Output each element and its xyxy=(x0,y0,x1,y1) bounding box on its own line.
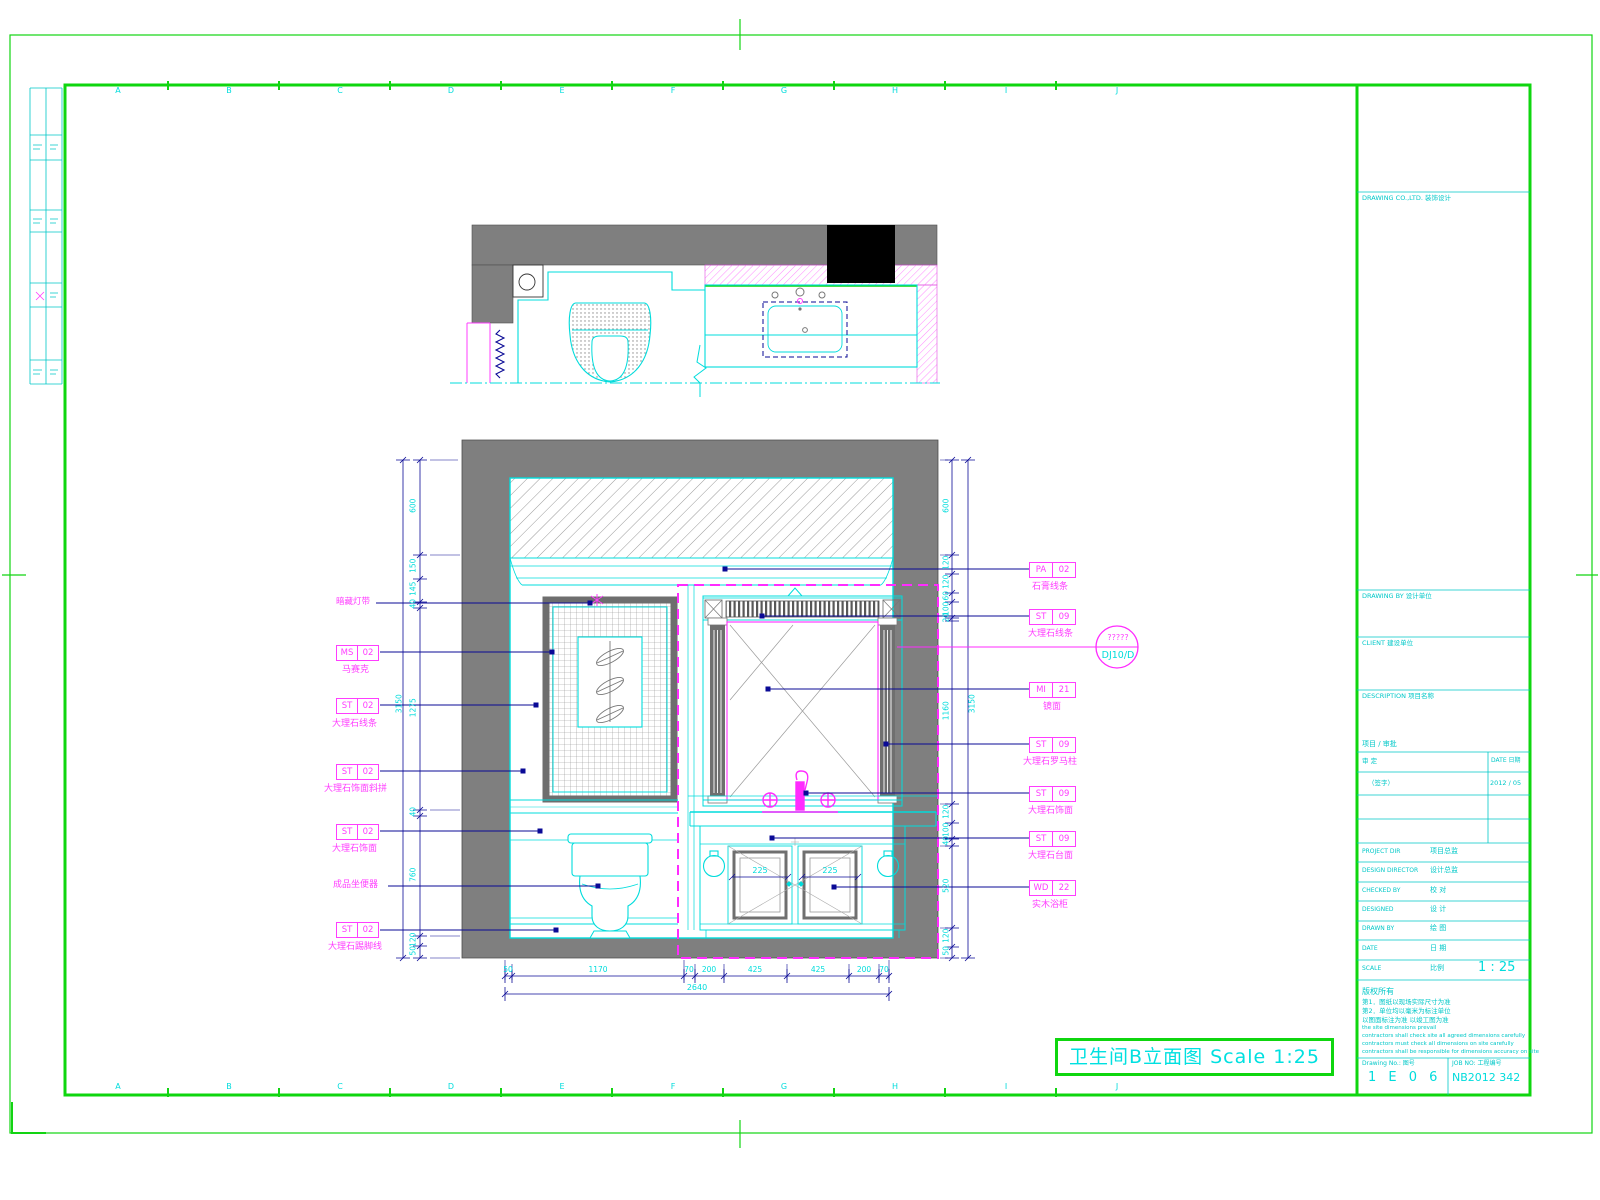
material-tag-pilaster: ST09 xyxy=(1029,737,1076,753)
info-en: SCALE xyxy=(1362,966,1381,972)
dim-text: 70 xyxy=(869,966,899,974)
material-label-skirting: 大理石踢脚线 xyxy=(328,943,382,952)
note-line: 版权所有 xyxy=(1362,988,1394,996)
material-tag-stone-face: ST02 xyxy=(336,824,379,840)
material-label-plaster: 石膏线条 xyxy=(1032,583,1068,592)
dim-text: 1275 xyxy=(409,688,417,728)
material-label-stone-diag: 大理石饰面斜拼 xyxy=(324,785,387,794)
material-label-pilaster: 大理石罗马柱 xyxy=(1023,758,1077,767)
scale-value: 1 : 25 xyxy=(1478,961,1515,974)
material-label-toilet: 成品坐便器 xyxy=(333,881,378,890)
note-line: 第1．图纸以现场实际尺寸为准 xyxy=(1362,999,1451,1006)
dim-text: 40 xyxy=(942,821,950,861)
material-label-stone-face: 大理石饰面 xyxy=(332,845,377,854)
info-cn: 设 计 xyxy=(1430,906,1446,913)
material-tag-stone-face-r: ST09 xyxy=(1029,786,1076,802)
titleblock-sec2: CLIENT 建设单位 xyxy=(1362,640,1413,647)
dim-text: 50 xyxy=(942,931,950,971)
material-label-cabinet: 实木浴柜 xyxy=(1032,901,1068,910)
grid-letter: I xyxy=(1000,86,1012,95)
material-label-mirror: 镜面 xyxy=(1043,703,1061,712)
info-cn: 日 期 xyxy=(1430,945,1446,952)
titleblock-company: DRAWING CO.,LTD. 装饰设计 xyxy=(1362,195,1451,202)
dim-total-right: 3150 xyxy=(968,684,976,724)
material-tag-countertop: ST09 xyxy=(1029,831,1076,847)
material-tag-skirting: ST02 xyxy=(336,922,379,938)
dim-text: 1160 xyxy=(942,691,950,731)
grid-letter: C xyxy=(334,86,346,95)
dim-text: 40 xyxy=(409,792,417,832)
drawing-title: 卫生间B立面图 Scale 1:25 xyxy=(1058,1041,1331,1073)
dim-text: 1170 xyxy=(583,966,613,974)
drawing-no: 1 E 0 6 xyxy=(1368,1071,1441,1084)
grid-letter: C xyxy=(334,1082,346,1091)
dim-total-bottom: 2640 xyxy=(672,984,722,992)
info-en: DESIGNED xyxy=(1362,907,1394,913)
grid-letter: E xyxy=(556,1082,568,1091)
grid-letter: B xyxy=(223,1082,235,1091)
dim-total-left: 3150 xyxy=(395,684,403,724)
material-label-mosaic: 马赛克 xyxy=(342,666,369,675)
titleblock-sec4: 项目 / 审批 xyxy=(1362,741,1397,748)
grid-letter: H xyxy=(889,86,901,95)
material-label-stone-face-r: 大理石饰面 xyxy=(1028,807,1073,816)
approval-h1: 审 定 xyxy=(1362,758,1377,765)
dim-text: 40 xyxy=(409,584,417,624)
dim-text: 425 xyxy=(803,966,833,974)
dim-text: 600 xyxy=(409,486,417,526)
dim-text: 50 xyxy=(493,966,523,974)
material-label-countertop: 大理石台面 xyxy=(1028,852,1073,861)
info-en: CHECKED BY xyxy=(1362,888,1400,894)
dim-text: 760 xyxy=(409,855,417,895)
info-en: DATE xyxy=(1362,946,1378,952)
titleblock-sec3: DESCRIPTION 项目名称 xyxy=(1362,693,1434,700)
material-tag-stone-diag: ST02 xyxy=(336,764,379,780)
cad-linework xyxy=(0,0,1600,1200)
dim-text: 520 xyxy=(942,866,950,906)
grid-letter: G xyxy=(778,1082,790,1091)
approval-h2: DATE 日期 xyxy=(1491,758,1521,764)
material-label-lightstrip: 暗藏灯带 xyxy=(336,598,370,607)
grid-letter: G xyxy=(778,86,790,95)
dim-text: 600 xyxy=(942,486,950,526)
info-en: DRAWN BY xyxy=(1362,926,1394,932)
cad-sheet: A B C D E F G H I J A B C D E F G H I J … xyxy=(0,0,1600,1200)
grid-letter: B xyxy=(223,86,235,95)
note-line: contractors must check all dimensions on… xyxy=(1362,1042,1514,1048)
material-tag-mirror: MI21 xyxy=(1029,682,1076,698)
note-line: 以图面标注为准 以竣工图为准 xyxy=(1362,1017,1449,1024)
grid-letter: F xyxy=(667,86,679,95)
approval-v1: （签字） xyxy=(1368,780,1394,787)
note-line: contractors shall be responsible for dim… xyxy=(1362,1050,1539,1056)
grid-letter: I xyxy=(1000,1082,1012,1091)
grid-letter: E xyxy=(556,86,568,95)
info-en: DESIGN DIRECTOR xyxy=(1362,868,1418,874)
info-cn: 比例 xyxy=(1430,965,1444,972)
material-tag-stone-trim: ST02 xyxy=(336,698,379,714)
grid-letter: A xyxy=(112,86,124,95)
info-en: PROJECT DIR xyxy=(1362,849,1400,855)
grid-letter: H xyxy=(889,1082,901,1091)
grid-letter: F xyxy=(667,1082,679,1091)
grid-letter: D xyxy=(445,86,457,95)
door-dim: 225 xyxy=(746,867,774,875)
grid-letter: D xyxy=(445,1082,457,1091)
info-cn: 绘 图 xyxy=(1430,925,1446,932)
dim-text: 200 xyxy=(694,966,724,974)
dim-text: 50 xyxy=(409,931,417,971)
material-tag-plaster: PA02 xyxy=(1029,562,1076,578)
dim-text: 425 xyxy=(740,966,770,974)
material-label-stone-trim: 大理石线条 xyxy=(332,720,377,729)
note-line: contractors shall check site all agreed … xyxy=(1362,1034,1525,1040)
detail-bubble-ref: DJ10/D xyxy=(1094,651,1142,661)
drawing-no-label: Drawing No.: 图号 xyxy=(1362,1061,1415,1067)
approval-v2: 2012 / 05 xyxy=(1490,780,1521,787)
material-tag-cabinet: WD22 xyxy=(1029,880,1076,896)
material-tag-stone-trim-r: ST09 xyxy=(1029,609,1076,625)
note-line: the site dimensions prevail xyxy=(1362,1026,1436,1032)
material-tag-mosaic: MS02 xyxy=(336,645,379,661)
drawing-title-box: 卫生间B立面图 Scale 1:25 xyxy=(1055,1038,1334,1076)
info-cn: 项目总监 xyxy=(1430,848,1458,855)
job-no-label: JOB NO: 工程编号 xyxy=(1452,1061,1502,1067)
note-line: 第2．单位均以毫米为标注单位 xyxy=(1362,1008,1451,1015)
grid-letter: J xyxy=(1111,86,1123,95)
material-label-stone-trim-r: 大理石线条 xyxy=(1028,630,1073,639)
info-cn: 设计总监 xyxy=(1430,867,1458,874)
door-dim: 225 xyxy=(816,867,844,875)
info-cn: 校 对 xyxy=(1430,887,1446,894)
titleblock-sec1: DRAWING BY 设计单位 xyxy=(1362,593,1432,600)
job-no: NB2012 342 xyxy=(1452,1072,1520,1083)
grid-letter: J xyxy=(1111,1082,1123,1091)
grid-letter: A xyxy=(112,1082,124,1091)
detail-bubble-top: ????? xyxy=(1096,634,1140,642)
dim-text: 20 xyxy=(942,598,950,638)
